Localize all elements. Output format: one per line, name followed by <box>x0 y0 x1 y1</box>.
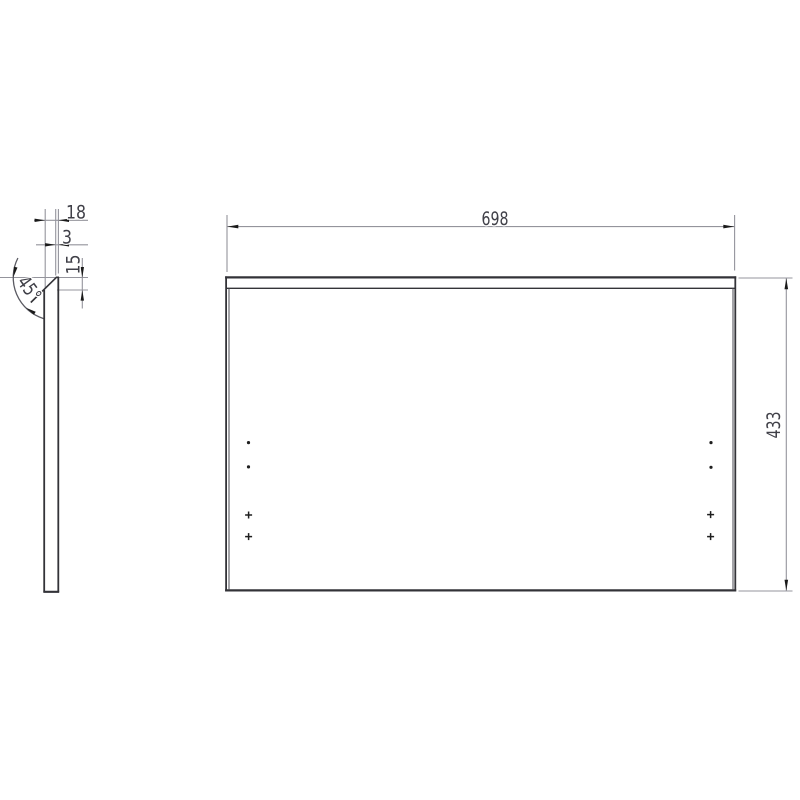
dim-arrow <box>26 308 36 315</box>
hole-cross-marker <box>245 512 252 519</box>
hole-cross-marker <box>245 533 252 540</box>
dim-arrow <box>45 243 56 246</box>
dim-arrow <box>723 225 734 229</box>
hole-cross-markers <box>245 511 714 540</box>
dim-text-height: 433 <box>763 412 785 439</box>
side-view: 18 3 15 45° <box>0 202 88 592</box>
front-view-dimensions <box>227 215 793 591</box>
hole-dot-marker <box>709 441 712 444</box>
dim-arrow <box>227 225 238 229</box>
hole-dot-marker <box>247 465 250 468</box>
dim-arrow <box>81 290 84 301</box>
front-view-part <box>225 276 736 591</box>
dim-text-top-flat: 3 <box>62 226 72 248</box>
dim-arrow <box>35 219 46 222</box>
dim-arrow <box>13 267 17 278</box>
hole-dot-marker <box>709 466 712 469</box>
side-view-part <box>31 277 59 592</box>
hole-dot-marker <box>247 441 250 444</box>
hole-cross-marker <box>707 511 714 518</box>
front-view-arrowheads <box>227 225 788 591</box>
drawing-page: 18 3 15 45° <box>0 0 800 800</box>
dim-text-chamfer-height: 15 <box>63 255 85 275</box>
front-view: 698 433 <box>225 208 792 591</box>
technical-drawing-canvas: 18 3 15 45° <box>0 0 800 800</box>
dim-arrow <box>785 580 789 591</box>
dim-arrow <box>785 278 789 289</box>
dim-text-width: 698 <box>482 208 509 230</box>
hole-cross-marker <box>707 533 714 540</box>
hole-dot-markers <box>247 441 713 469</box>
dim-text-depth: 18 <box>66 202 86 224</box>
